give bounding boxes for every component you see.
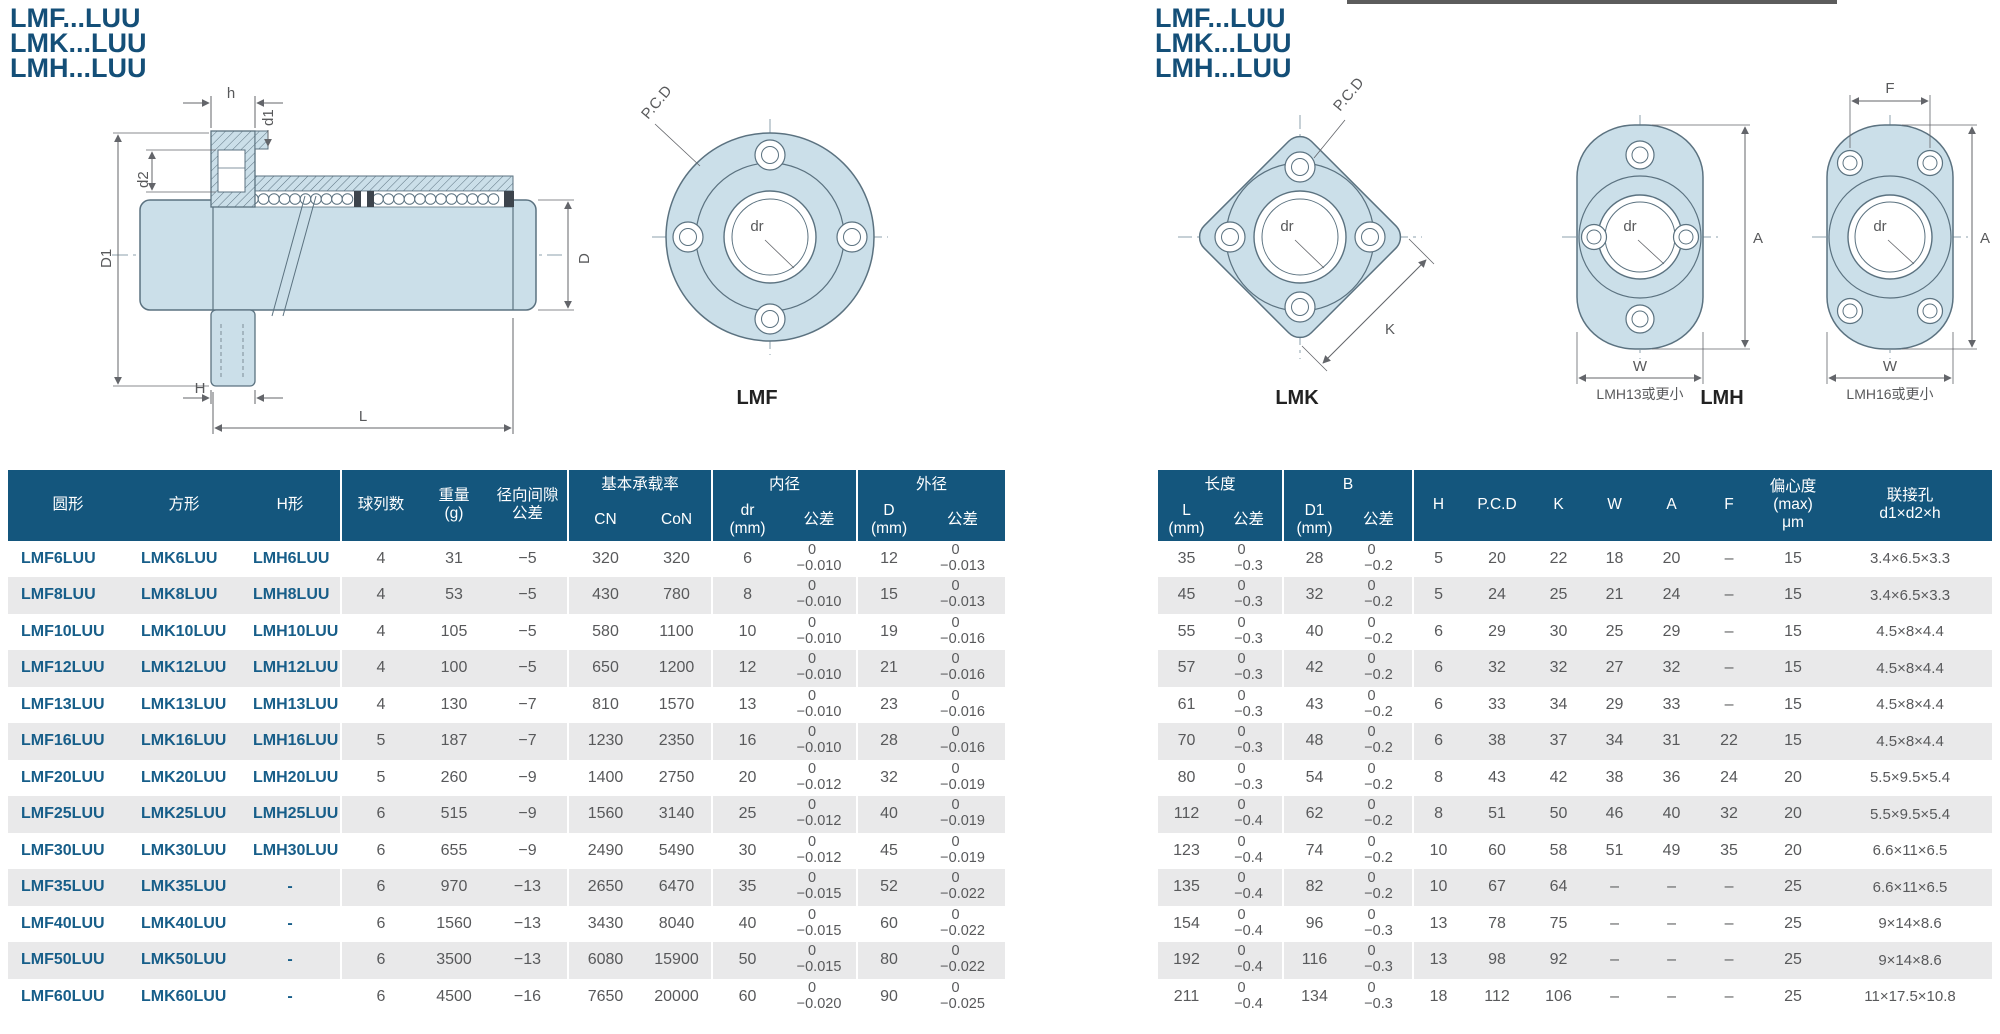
dr-label: dr (750, 218, 763, 235)
lmh-front-view-large: F A W dr LMH16或更小 LMH (1700, 80, 1990, 409)
cell: 32 (1463, 650, 1531, 687)
cell: 20 (1758, 760, 1828, 797)
cell: 49 (1643, 833, 1700, 870)
cell: −13 (488, 869, 568, 906)
cell: 0−0.2 (1345, 577, 1413, 614)
dim-label-A: A (1753, 230, 1763, 247)
cell: 61 (1158, 687, 1215, 724)
cell: 0−0.3 (1215, 760, 1283, 797)
cell: 810 (568, 687, 642, 724)
cell: LMF20LUU (8, 760, 128, 797)
cell: 28 (1283, 541, 1345, 578)
page-title-left: LMF...LUU LMK...LUU LMH...LUU (10, 6, 146, 81)
cell: 105 (420, 614, 488, 651)
cell: 0−0.016 (920, 687, 1005, 724)
cell: −13 (488, 942, 568, 979)
cell: LMK40LUU (128, 906, 240, 943)
table-row: LMF25LUULMK25LUULMH25LUU6515−91560314025… (8, 796, 1005, 833)
cell: 0−0.4 (1215, 906, 1283, 943)
cell: 6.6×11×6.5 (1828, 869, 1992, 906)
cell: - (240, 869, 341, 906)
cell: 20 (1758, 833, 1828, 870)
cell: 22 (1700, 723, 1758, 760)
cell: – (1586, 942, 1643, 979)
cell: 60 (857, 906, 920, 943)
cell: 0−0.3 (1215, 650, 1283, 687)
cell: 21 (1586, 577, 1643, 614)
cell: −9 (488, 833, 568, 870)
cell: 4.5×8×4.4 (1828, 614, 1992, 651)
cell: 92 (1531, 942, 1586, 979)
table-row: 550−0.3400−0.2629302529–154.5×8×4.4 (1158, 614, 1992, 651)
col-header-tol2: 公差 (1345, 500, 1413, 541)
cell: - (240, 942, 341, 979)
col-header-mount-hole: 联接孔 d1×d2×h (1828, 470, 1992, 541)
cell: 50 (1531, 796, 1586, 833)
col-header-round: 圆形 (8, 470, 128, 541)
cell: 25 (1758, 942, 1828, 979)
cell: – (1586, 906, 1643, 943)
cell: 0−0.010 (782, 614, 857, 651)
col-header-tol2: 公差 (920, 500, 1005, 541)
cell: 80 (1158, 760, 1215, 797)
cell: LMK30LUU (128, 833, 240, 870)
cell: 5490 (642, 833, 712, 870)
table-row: LMF8LUULMK8LUULMH8LUU453−543078080−0.010… (8, 577, 1005, 614)
col-header-clearance: 径向间隙 公差 (488, 470, 568, 541)
cell: 51 (1586, 833, 1643, 870)
cell: 1560 (420, 906, 488, 943)
cell: 48 (1283, 723, 1345, 760)
page-top-rule (1347, 0, 1837, 4)
table-row: LMF60LUULMK60LUU-64500−16765020000600−0.… (8, 979, 1005, 1016)
cell: 0−0.015 (782, 942, 857, 979)
col-header-dr: dr (mm) (712, 500, 782, 541)
cell: 80 (857, 942, 920, 979)
cell: 22 (1531, 541, 1586, 578)
cell: 43 (1463, 760, 1531, 797)
table-row: 1350−0.4820−0.2106764–––256.6×11×6.5 (1158, 869, 1992, 906)
cell: – (1700, 906, 1758, 943)
cell: 29 (1586, 687, 1643, 724)
cell: LMK10LUU (128, 614, 240, 651)
cell: LMF60LUU (8, 979, 128, 1016)
cell: – (1643, 869, 1700, 906)
group-header-bore: 内径 (712, 470, 857, 500)
cell: 0−0.3 (1215, 687, 1283, 724)
cell: 43 (1283, 687, 1345, 724)
cell: 8 (1413, 796, 1463, 833)
cell: 30 (712, 833, 782, 870)
cell: LMF25LUU (8, 796, 128, 833)
cell: 0−0.4 (1215, 942, 1283, 979)
cell: 0−0.013 (920, 541, 1005, 578)
cell: 42 (1283, 650, 1345, 687)
cell: 5 (1413, 577, 1463, 614)
cell: 0−0.2 (1345, 687, 1413, 724)
cell: 0−0.4 (1215, 833, 1283, 870)
dr-label: dr (1280, 218, 1293, 235)
cell: 192 (1158, 942, 1215, 979)
cell: 1200 (642, 650, 712, 687)
cell: 90 (857, 979, 920, 1016)
cell: 1230 (568, 723, 642, 760)
cell: 6 (1413, 687, 1463, 724)
cell: 15 (1758, 650, 1828, 687)
table-row: LMF35LUULMK35LUU-6970−1326506470350−0.01… (8, 869, 1005, 906)
cell: 51 (1463, 796, 1531, 833)
cell: 0−0.2 (1345, 833, 1413, 870)
cell: 6 (341, 942, 420, 979)
cell: 10 (1413, 833, 1463, 870)
lmh-caption: LMH (1700, 387, 1743, 409)
cell: 25 (1586, 614, 1643, 651)
cell: 96 (1283, 906, 1345, 943)
cell: - (240, 906, 341, 943)
cell: −9 (488, 796, 568, 833)
table-row: LMF20LUULMK20LUULMH20LUU5260−91400275020… (8, 760, 1005, 797)
page-title-right: LMF...LUU LMK...LUU LMH...LUU (1155, 6, 1291, 81)
col-header-k: K (1531, 470, 1586, 541)
cell: 70 (1158, 723, 1215, 760)
cell: 320 (642, 541, 712, 578)
cell: – (1700, 979, 1758, 1016)
cell: LMF12LUU (8, 650, 128, 687)
table-row: 1540−0.4960−0.3137875–––259×14×8.6 (1158, 906, 1992, 943)
group-header-od: 外径 (857, 470, 1005, 500)
cell: 0−0.3 (1345, 906, 1413, 943)
cell: 98 (1463, 942, 1531, 979)
cell: 3500 (420, 942, 488, 979)
cell: 6 (341, 979, 420, 1016)
cell: 112 (1158, 796, 1215, 833)
cell: 24 (1700, 760, 1758, 797)
cell: 38 (1586, 760, 1643, 797)
cell: 52 (857, 869, 920, 906)
cell: 15 (1758, 577, 1828, 614)
cell: 9×14×8.6 (1828, 906, 1992, 943)
cell: 15 (1758, 723, 1828, 760)
cell: −5 (488, 650, 568, 687)
cell: 13 (1413, 942, 1463, 979)
table-row: LMF30LUULMK30LUULMH30LUU6655−92490549030… (8, 833, 1005, 870)
cell: 0−0.015 (782, 906, 857, 943)
cell: 4.5×8×4.4 (1828, 650, 1992, 687)
group-header-length: 长度 (1158, 470, 1283, 500)
table-row: LMF12LUULMK12LUULMH12LUU4100−56501200120… (8, 650, 1005, 687)
cell: 29 (1643, 614, 1700, 651)
cell: 4.5×8×4.4 (1828, 687, 1992, 724)
cell: 260 (420, 760, 488, 797)
cell: 5.5×9.5×5.4 (1828, 796, 1992, 833)
left-spec-table: 圆形 方形 H形 球列数 重量 (g) 径向间隙 公差 基本承载率 内径 外径 … (8, 470, 1005, 1015)
cell: 27 (1586, 650, 1643, 687)
cell: LMF40LUU (8, 906, 128, 943)
cell: 0−0.016 (920, 650, 1005, 687)
lmh-front-view-small: A W dr LMH13或更小 (1562, 115, 1763, 402)
cell: 0−0.3 (1345, 979, 1413, 1016)
table-row: 450−0.3320−0.2524252124–153.4×6.5×3.3 (1158, 577, 1992, 614)
cell: 1570 (642, 687, 712, 724)
col-header-square: 方形 (128, 470, 240, 541)
cell: 6.6×11×6.5 (1828, 833, 1992, 870)
cell: 0−0.020 (782, 979, 857, 1016)
cell: LMF10LUU (8, 614, 128, 651)
cell: 655 (420, 833, 488, 870)
cell: 16 (712, 723, 782, 760)
table-row: 1230−0.4740−0.2106058514935206.6×11×6.5 (1158, 833, 1992, 870)
cell: 60 (712, 979, 782, 1016)
cell: 0−0.019 (920, 833, 1005, 870)
cell: – (1700, 541, 1758, 578)
cell: LMK25LUU (128, 796, 240, 833)
right-spec-table: 长度 B H P.C.D K W A F 偏心度 (max) μm 联接孔 d1… (1158, 470, 1992, 1015)
table-row: LMF10LUULMK10LUULMH10LUU4105−55801100100… (8, 614, 1005, 651)
cell: 1400 (568, 760, 642, 797)
cell: 40 (857, 796, 920, 833)
cell: 6 (341, 796, 420, 833)
cell: 6 (1413, 614, 1463, 651)
cell: −7 (488, 723, 568, 760)
cell: LMF16LUU (8, 723, 128, 760)
cell: 40 (1643, 796, 1700, 833)
dim-label-D1: D1 (98, 249, 115, 268)
cell: 32 (1531, 650, 1586, 687)
cell: LMK13LUU (128, 687, 240, 724)
cell: LMH10LUU (240, 614, 341, 651)
cell: – (1643, 942, 1700, 979)
technical-drawings: h d1 d2 D1 D H L P.C.D dr (0, 78, 2000, 440)
dim-label-F: F (1885, 80, 1894, 97)
cell: 130 (420, 687, 488, 724)
col-header-a: A (1643, 470, 1700, 541)
cell: 28 (857, 723, 920, 760)
cell: 0−0.010 (782, 577, 857, 614)
cell: 4 (341, 687, 420, 724)
dr-label: dr (1873, 218, 1886, 235)
cell: 21 (857, 650, 920, 687)
cell: 37 (1531, 723, 1586, 760)
lmf-caption: LMF (736, 387, 777, 409)
table-row: 700−0.3480−0.263837343122154.5×8×4.4 (1158, 723, 1992, 760)
col-header-d: D (mm) (857, 500, 920, 541)
cell: 78 (1463, 906, 1531, 943)
cell: 34 (1586, 723, 1643, 760)
cell: 0−0.013 (920, 577, 1005, 614)
cell: – (1700, 869, 1758, 906)
dim-label-W: W (1633, 358, 1648, 375)
cell: 0−0.012 (782, 760, 857, 797)
cell: 32 (1283, 577, 1345, 614)
cell: LMH8LUU (240, 577, 341, 614)
lmf-front-view: P.C.D dr LMF (638, 82, 888, 409)
col-header-l: L (mm) (1158, 500, 1215, 541)
col-header-pcd: P.C.D (1463, 470, 1531, 541)
cell: 6 (712, 541, 782, 578)
cell: 42 (1531, 760, 1586, 797)
cell: 0−0.2 (1345, 723, 1413, 760)
cell: 515 (420, 796, 488, 833)
cell: 0−0.2 (1345, 541, 1413, 578)
cell: 57 (1158, 650, 1215, 687)
cell: 55 (1158, 614, 1215, 651)
cell: – (1586, 979, 1643, 1016)
cell: 15 (1758, 541, 1828, 578)
cell: 116 (1283, 942, 1345, 979)
cell: 3.4×6.5×3.3 (1828, 577, 1992, 614)
cell: LMF13LUU (8, 687, 128, 724)
cell: – (1586, 869, 1643, 906)
table-row: LMF40LUULMK40LUU-61560−1334308040400−0.0… (8, 906, 1005, 943)
cell: 67 (1463, 869, 1531, 906)
cell: 3140 (642, 796, 712, 833)
cell: 0−0.016 (920, 614, 1005, 651)
table-row: 1120−0.4620−0.285150464032205.5×9.5×5.4 (1158, 796, 1992, 833)
cell: 112 (1463, 979, 1531, 1016)
cell: 4.5×8×4.4 (1828, 723, 1992, 760)
col-header-w: W (1586, 470, 1643, 541)
cell: LMF50LUU (8, 942, 128, 979)
cell: 0−0.010 (782, 687, 857, 724)
cell: 0−0.2 (1345, 869, 1413, 906)
cell: 154 (1158, 906, 1215, 943)
cell: 0−0.2 (1345, 760, 1413, 797)
cell: 2650 (568, 869, 642, 906)
cell: 20 (712, 760, 782, 797)
cell: 53 (420, 577, 488, 614)
col-header-h: H (1413, 470, 1463, 541)
cell: 45 (1158, 577, 1215, 614)
cell: 15 (1758, 614, 1828, 651)
cell: 5.5×9.5×5.4 (1828, 760, 1992, 797)
cell: – (1700, 942, 1758, 979)
lmh13-caption: LMH13或更小 (1596, 386, 1683, 402)
cell: 0−0.4 (1215, 869, 1283, 906)
cell: 1100 (642, 614, 712, 651)
cell: 20 (1463, 541, 1531, 578)
lmf-section-drawing: h d1 d2 D1 D H L (98, 85, 593, 434)
cell: 33 (1463, 687, 1531, 724)
cell: 35 (1700, 833, 1758, 870)
cell: 82 (1283, 869, 1345, 906)
cell: 134 (1283, 979, 1345, 1016)
cell: 10 (712, 614, 782, 651)
cell: 0−0.3 (1345, 942, 1413, 979)
cell: 2350 (642, 723, 712, 760)
cell: 4 (341, 541, 420, 578)
cell: 11×17.5×10.8 (1828, 979, 1992, 1016)
cell: 0−0.015 (782, 869, 857, 906)
cell: 6 (1413, 723, 1463, 760)
cell: - (240, 979, 341, 1016)
cell: 5 (1413, 541, 1463, 578)
dim-label-d2: d2 (135, 171, 152, 188)
cell: 32 (857, 760, 920, 797)
cell: 25 (1758, 869, 1828, 906)
cell: LMK50LUU (128, 942, 240, 979)
col-header-f: F (1700, 470, 1758, 541)
dim-label-L: L (359, 408, 367, 425)
lmk-front-view: P.C.D dr K LMK (1178, 78, 1434, 409)
cell: 0−0.012 (782, 833, 857, 870)
cell: 25 (1758, 906, 1828, 943)
cell: 58 (1531, 833, 1586, 870)
cell: 8040 (642, 906, 712, 943)
col-header-d1: D1 (mm) (1283, 500, 1345, 541)
dim-label-K: K (1385, 321, 1395, 338)
cell: 13 (712, 687, 782, 724)
cell: 123 (1158, 833, 1215, 870)
cell: 54 (1283, 760, 1345, 797)
cell: 0−0.022 (920, 906, 1005, 943)
lmh16-caption: LMH16或更小 (1846, 386, 1933, 402)
cell: 15 (1758, 687, 1828, 724)
cell: 74 (1283, 833, 1345, 870)
table-row: 610−0.3430−0.2633342933–154.5×8×4.4 (1158, 687, 1992, 724)
group-header-b: B (1283, 470, 1413, 500)
cell: 32 (1643, 650, 1700, 687)
cell: 18 (1413, 979, 1463, 1016)
cell: LMH12LUU (240, 650, 341, 687)
col-header-ball-rows: 球列数 (341, 470, 420, 541)
cell: 40 (1283, 614, 1345, 651)
cell: 6 (341, 869, 420, 906)
col-header-h-type: H形 (240, 470, 341, 541)
cell: 0−0.3 (1215, 614, 1283, 651)
cell: – (1700, 687, 1758, 724)
cell: −7 (488, 687, 568, 724)
cell: 6470 (642, 869, 712, 906)
cell: – (1643, 979, 1700, 1016)
cell: 40 (712, 906, 782, 943)
cell: LMH16LUU (240, 723, 341, 760)
cell: 6 (341, 906, 420, 943)
cell: 36 (1643, 760, 1700, 797)
table-row: LMF16LUULMK16LUULMH16LUU5187−71230235016… (8, 723, 1005, 760)
cell: 0−0.010 (782, 650, 857, 687)
cell: 0−0.3 (1215, 577, 1283, 614)
cell: 135 (1158, 869, 1215, 906)
lmk-caption: LMK (1275, 387, 1319, 409)
cell: −13 (488, 906, 568, 943)
cell: 8 (1413, 760, 1463, 797)
cell: 320 (568, 541, 642, 578)
cell: LMH25LUU (240, 796, 341, 833)
cell: LMK6LUU (128, 541, 240, 578)
cell: LMH13LUU (240, 687, 341, 724)
cell: 75 (1531, 906, 1586, 943)
col-header-eccentricity: 偏心度 (max) μm (1758, 470, 1828, 541)
cell: 2750 (642, 760, 712, 797)
cell: 25 (1531, 577, 1586, 614)
cell: 12 (712, 650, 782, 687)
cell: −5 (488, 577, 568, 614)
table-row: LMF50LUULMK50LUU-63500−13608015900500−0.… (8, 942, 1005, 979)
cell: 18 (1586, 541, 1643, 578)
cell: 4 (341, 577, 420, 614)
cell: – (1700, 650, 1758, 687)
cell: LMF30LUU (8, 833, 128, 870)
cell: 24 (1463, 577, 1531, 614)
cell: 0−0.012 (782, 796, 857, 833)
cell: 4500 (420, 979, 488, 1016)
cell: 100 (420, 650, 488, 687)
cell: 187 (420, 723, 488, 760)
col-header-cn: CN (568, 500, 642, 541)
cell: 0−0.3 (1215, 723, 1283, 760)
cell: 23 (857, 687, 920, 724)
cell: 19 (857, 614, 920, 651)
